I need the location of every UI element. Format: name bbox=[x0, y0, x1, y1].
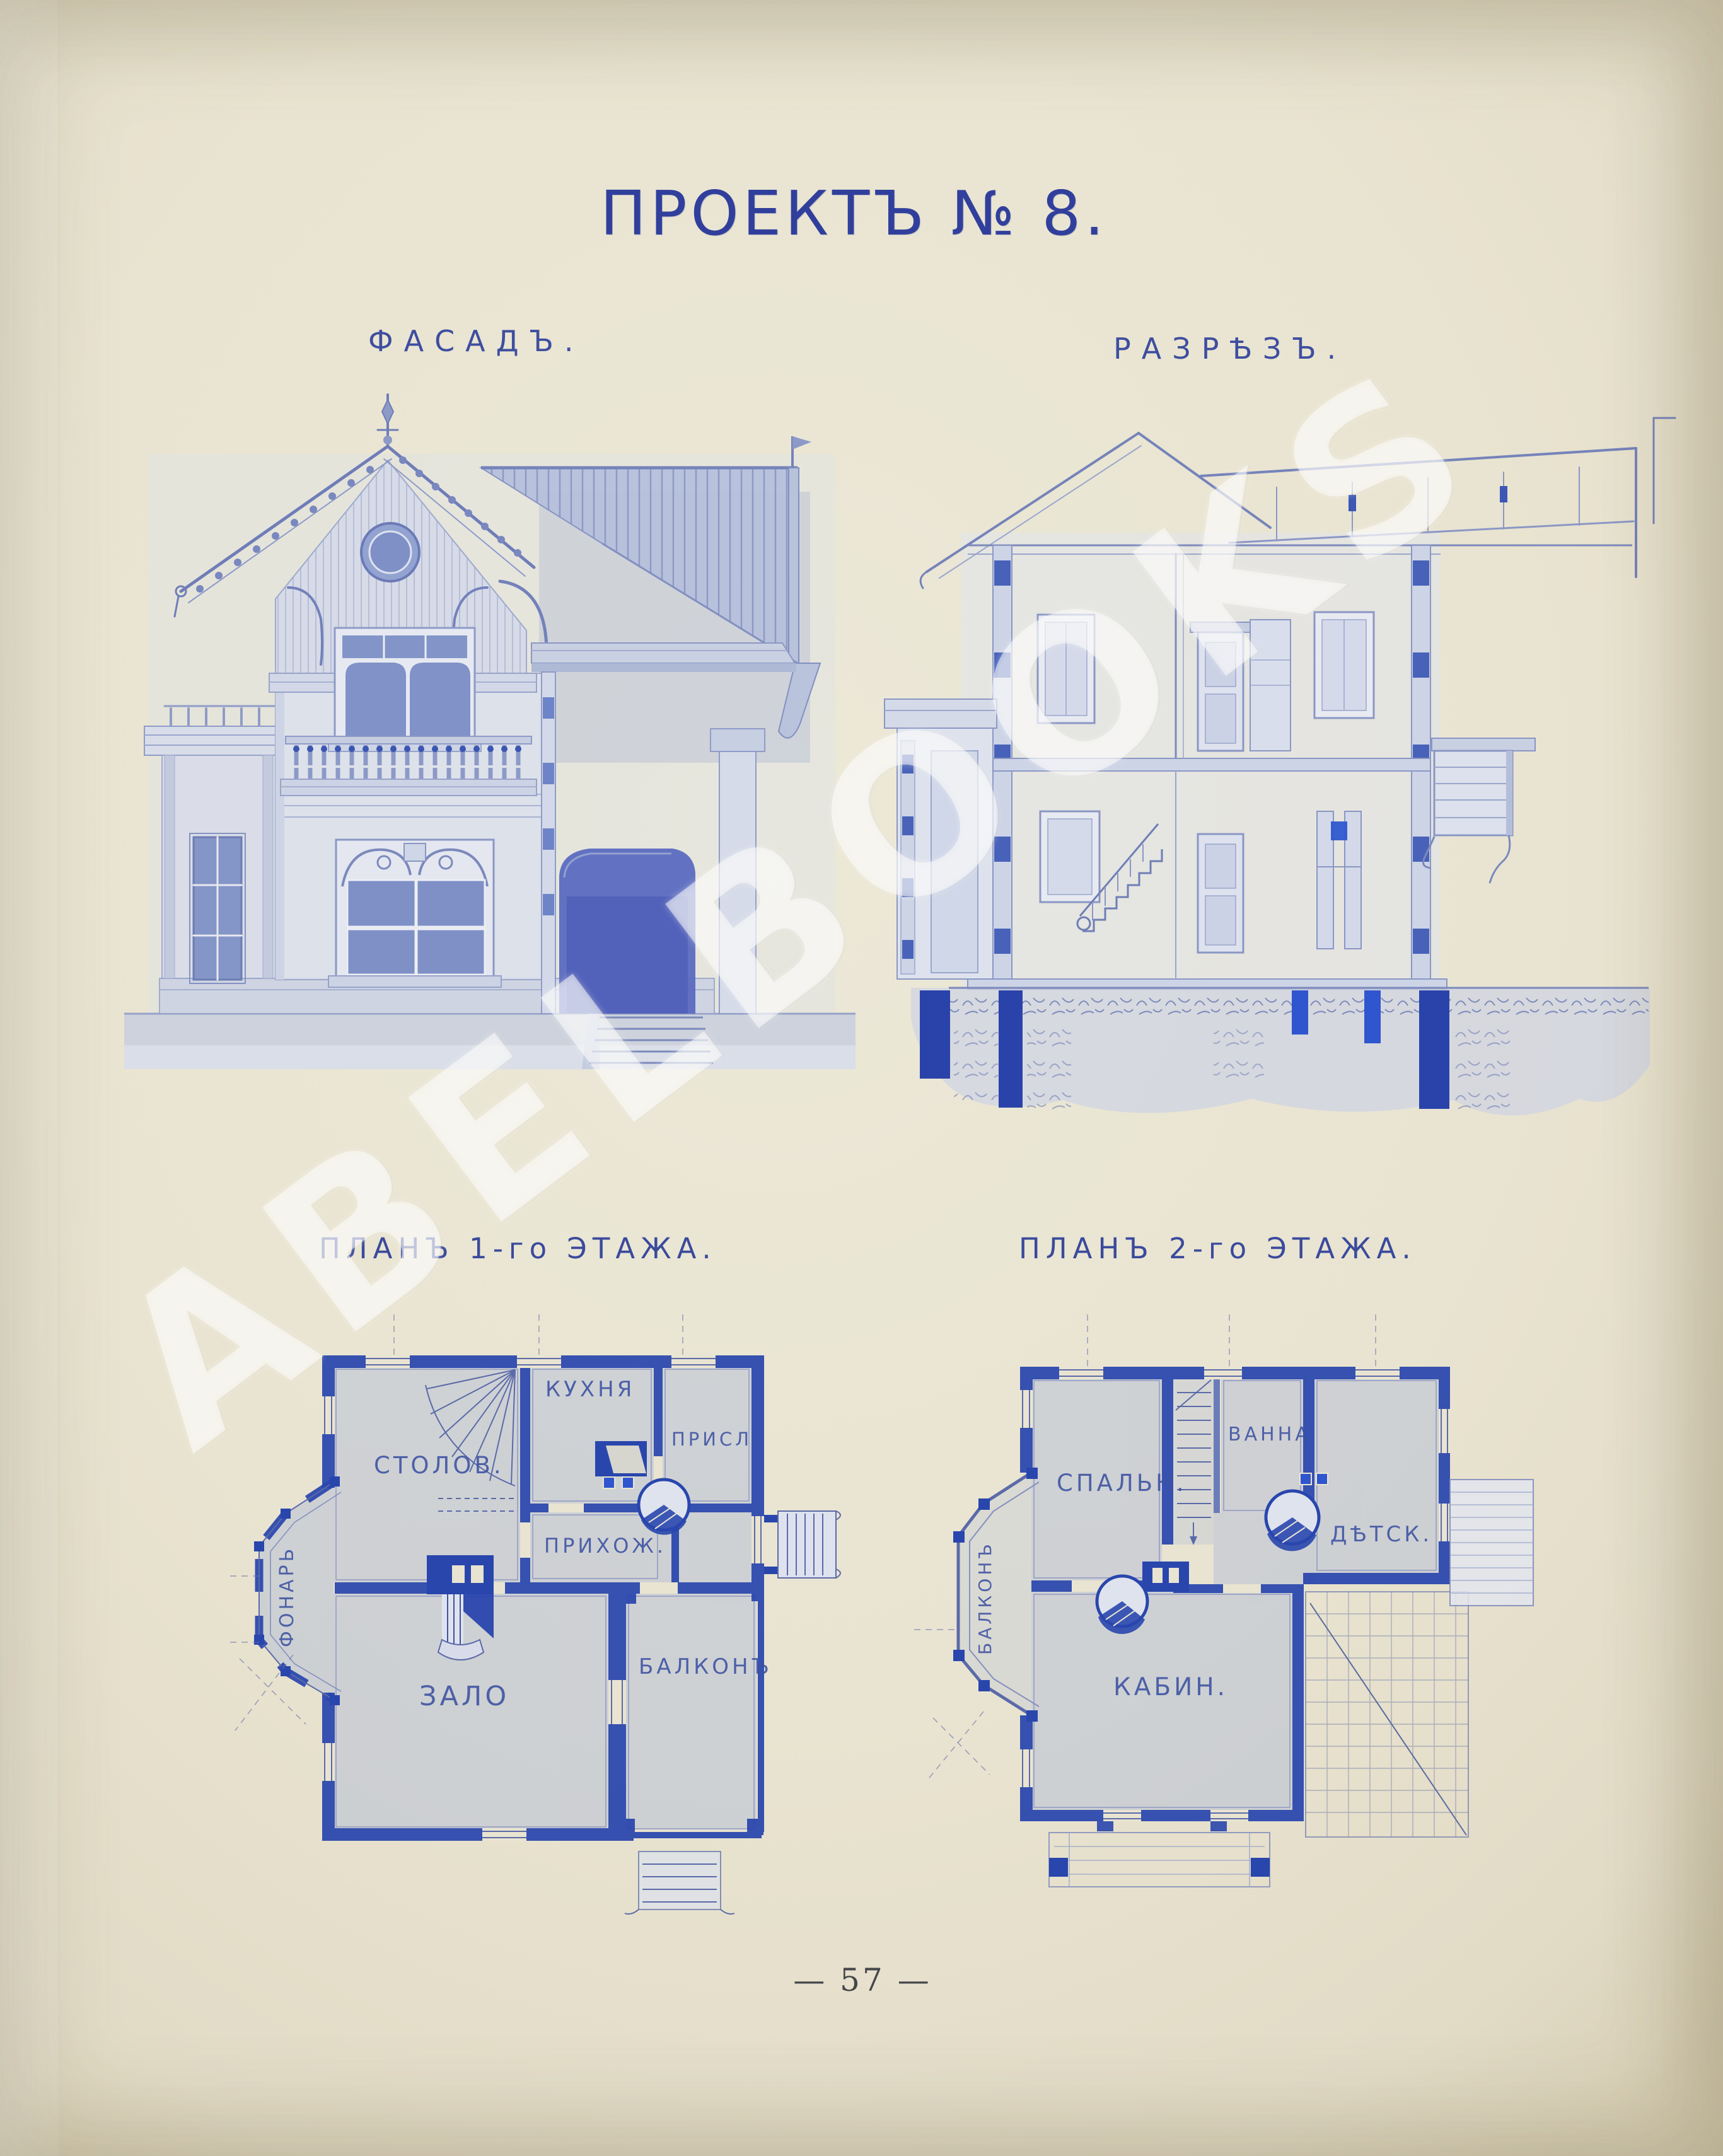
facade-label: ФАСАДЪ. bbox=[368, 324, 584, 358]
room-label-servants: ПРИСЛ. bbox=[671, 1429, 761, 1450]
page-title: ПРОЕКТЪ № 8. bbox=[600, 178, 1108, 249]
plan1-label: ПЛАНЪ 1-го ЭТАЖА. bbox=[319, 1232, 717, 1265]
plan2-terrace bbox=[1306, 1592, 1468, 1837]
section-left-wing bbox=[885, 699, 997, 979]
foundation-pier bbox=[1292, 990, 1308, 1035]
room-label-hallway: ПРИХОЖ. bbox=[544, 1534, 666, 1558]
plan2-porch-below bbox=[1049, 1821, 1270, 1887]
room-label-balcony-bay: БАЛКОНЪ bbox=[975, 1541, 995, 1655]
section-foundation bbox=[911, 988, 1650, 1116]
room-label-nursery: ДѢТСК. bbox=[1330, 1522, 1432, 1547]
room-label-bay: ФОНАРЬ bbox=[276, 1546, 298, 1647]
page-number: — 57 — bbox=[780, 1962, 944, 1998]
plan2-side-roof bbox=[1450, 1480, 1533, 1606]
plan2-drawing: СПАЛЬН. ВАННА ДѢТСК. КАБИН. БАЛКОНЪ bbox=[914, 1314, 1595, 1976]
room-label-kitchen: КУХНЯ bbox=[545, 1377, 635, 1402]
plan1-drawing: СТОЛОВ. КУХНЯ ПРИСЛ. ПРИХОЖ. ЗАЛО БАЛКОН… bbox=[230, 1314, 861, 1945]
room-label-hall: ЗАЛО bbox=[419, 1681, 509, 1712]
plan2-label: ПЛАНЪ 2-го ЭТАЖА. bbox=[1019, 1232, 1417, 1265]
room-label-bath: ВАННА bbox=[1228, 1423, 1311, 1446]
section-label: РАЗРѢЗЪ. bbox=[1113, 332, 1347, 366]
plan1-porch-steps bbox=[625, 1852, 734, 1914]
facade-drawing bbox=[123, 378, 873, 1072]
page-gutter-edge bbox=[0, 0, 59, 2156]
facade-left-wing bbox=[144, 706, 283, 983]
room-label-bedroom: СПАЛЬН. bbox=[1057, 1469, 1187, 1497]
facade-balcony bbox=[281, 736, 537, 796]
plan1-entrance-stairs bbox=[764, 1511, 840, 1578]
plan1-round-stove bbox=[639, 1480, 689, 1535]
room-label-dining: СТОЛОВ. bbox=[374, 1452, 504, 1479]
room-label-balcony: БАЛКОНЪ bbox=[639, 1654, 772, 1679]
facade-upper-window bbox=[328, 628, 481, 751]
room-label-study: КАБИН. bbox=[1113, 1673, 1228, 1701]
foundation-pier bbox=[1419, 990, 1449, 1109]
foundation-pier bbox=[999, 990, 1023, 1108]
foundation-pier bbox=[1364, 990, 1381, 1043]
facade-ground-window bbox=[328, 840, 501, 987]
foundation-pier bbox=[920, 990, 950, 1079]
section-drawing bbox=[873, 388, 1680, 1132]
